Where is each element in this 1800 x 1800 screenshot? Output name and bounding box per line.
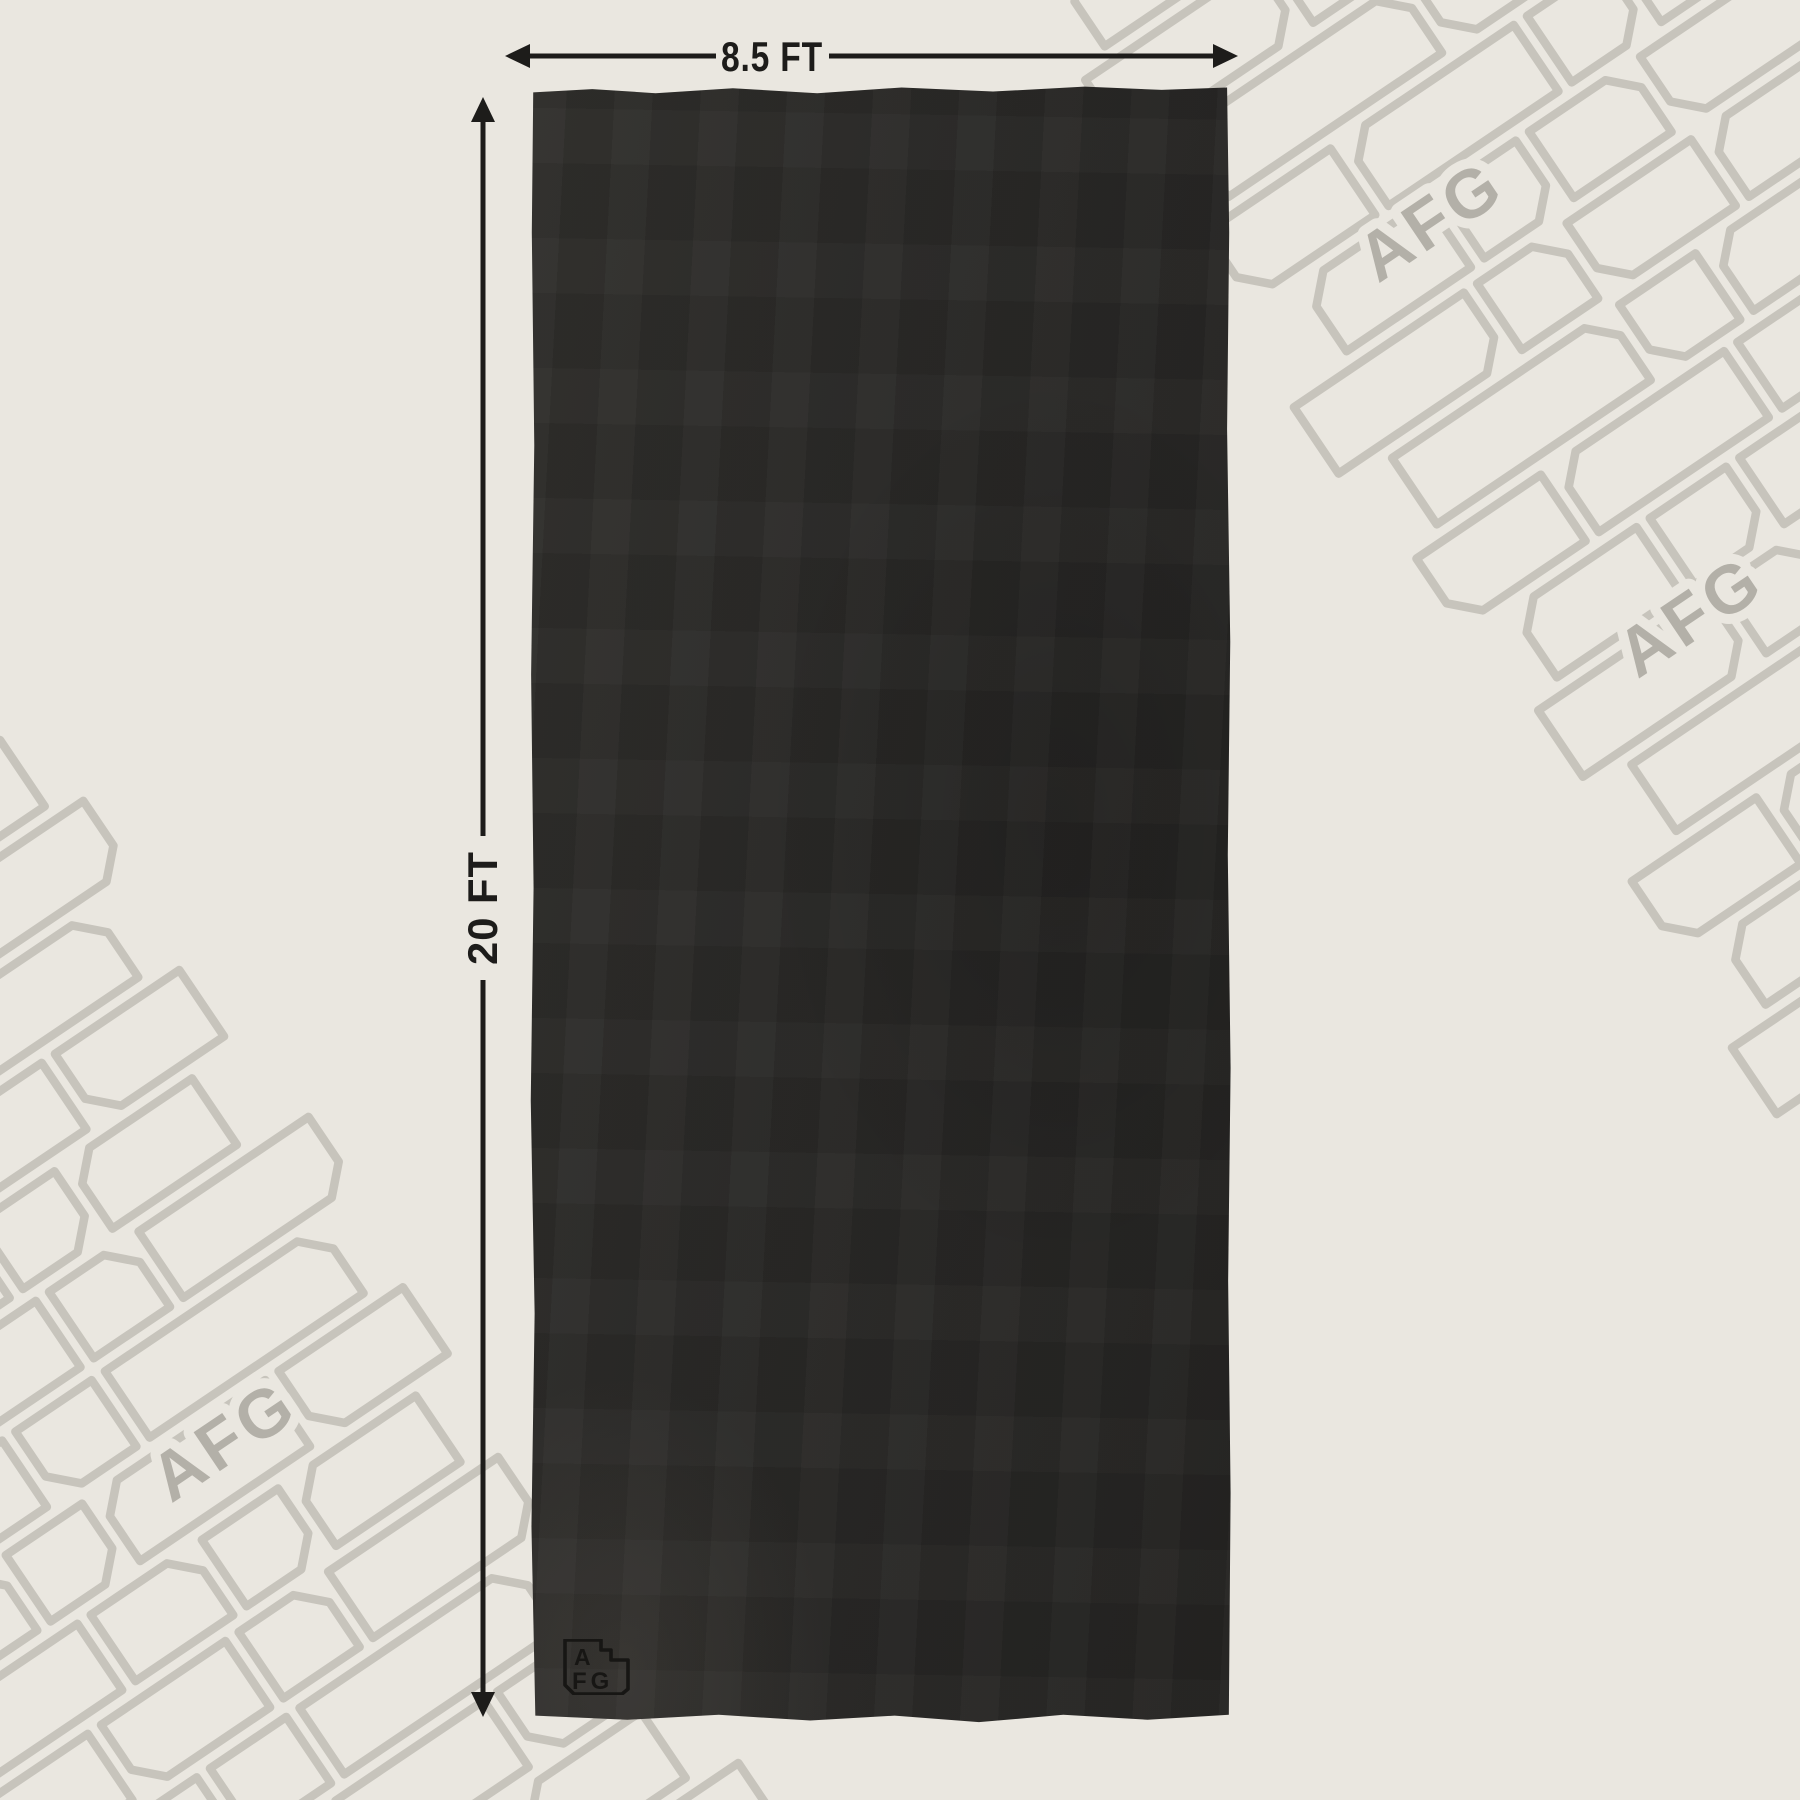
height-dimension-label: 20 FT (459, 851, 506, 965)
width-dimension: 8.5 FT (505, 33, 1238, 80)
product-dimension-image: AFGAFG AFGAFG A FG 8.5 FT 20 FT (0, 0, 1800, 1800)
height-dimension: 20 FT (459, 97, 506, 1717)
arrow-left-icon (505, 44, 530, 68)
arrow-right-icon (1213, 44, 1238, 68)
arrow-up-icon (471, 97, 495, 122)
width-dimension-label: 8.5 FT (721, 33, 823, 80)
arrow-down-icon (471, 1692, 495, 1717)
dimension-annotations: 8.5 FT 20 FT (0, 0, 1800, 1800)
